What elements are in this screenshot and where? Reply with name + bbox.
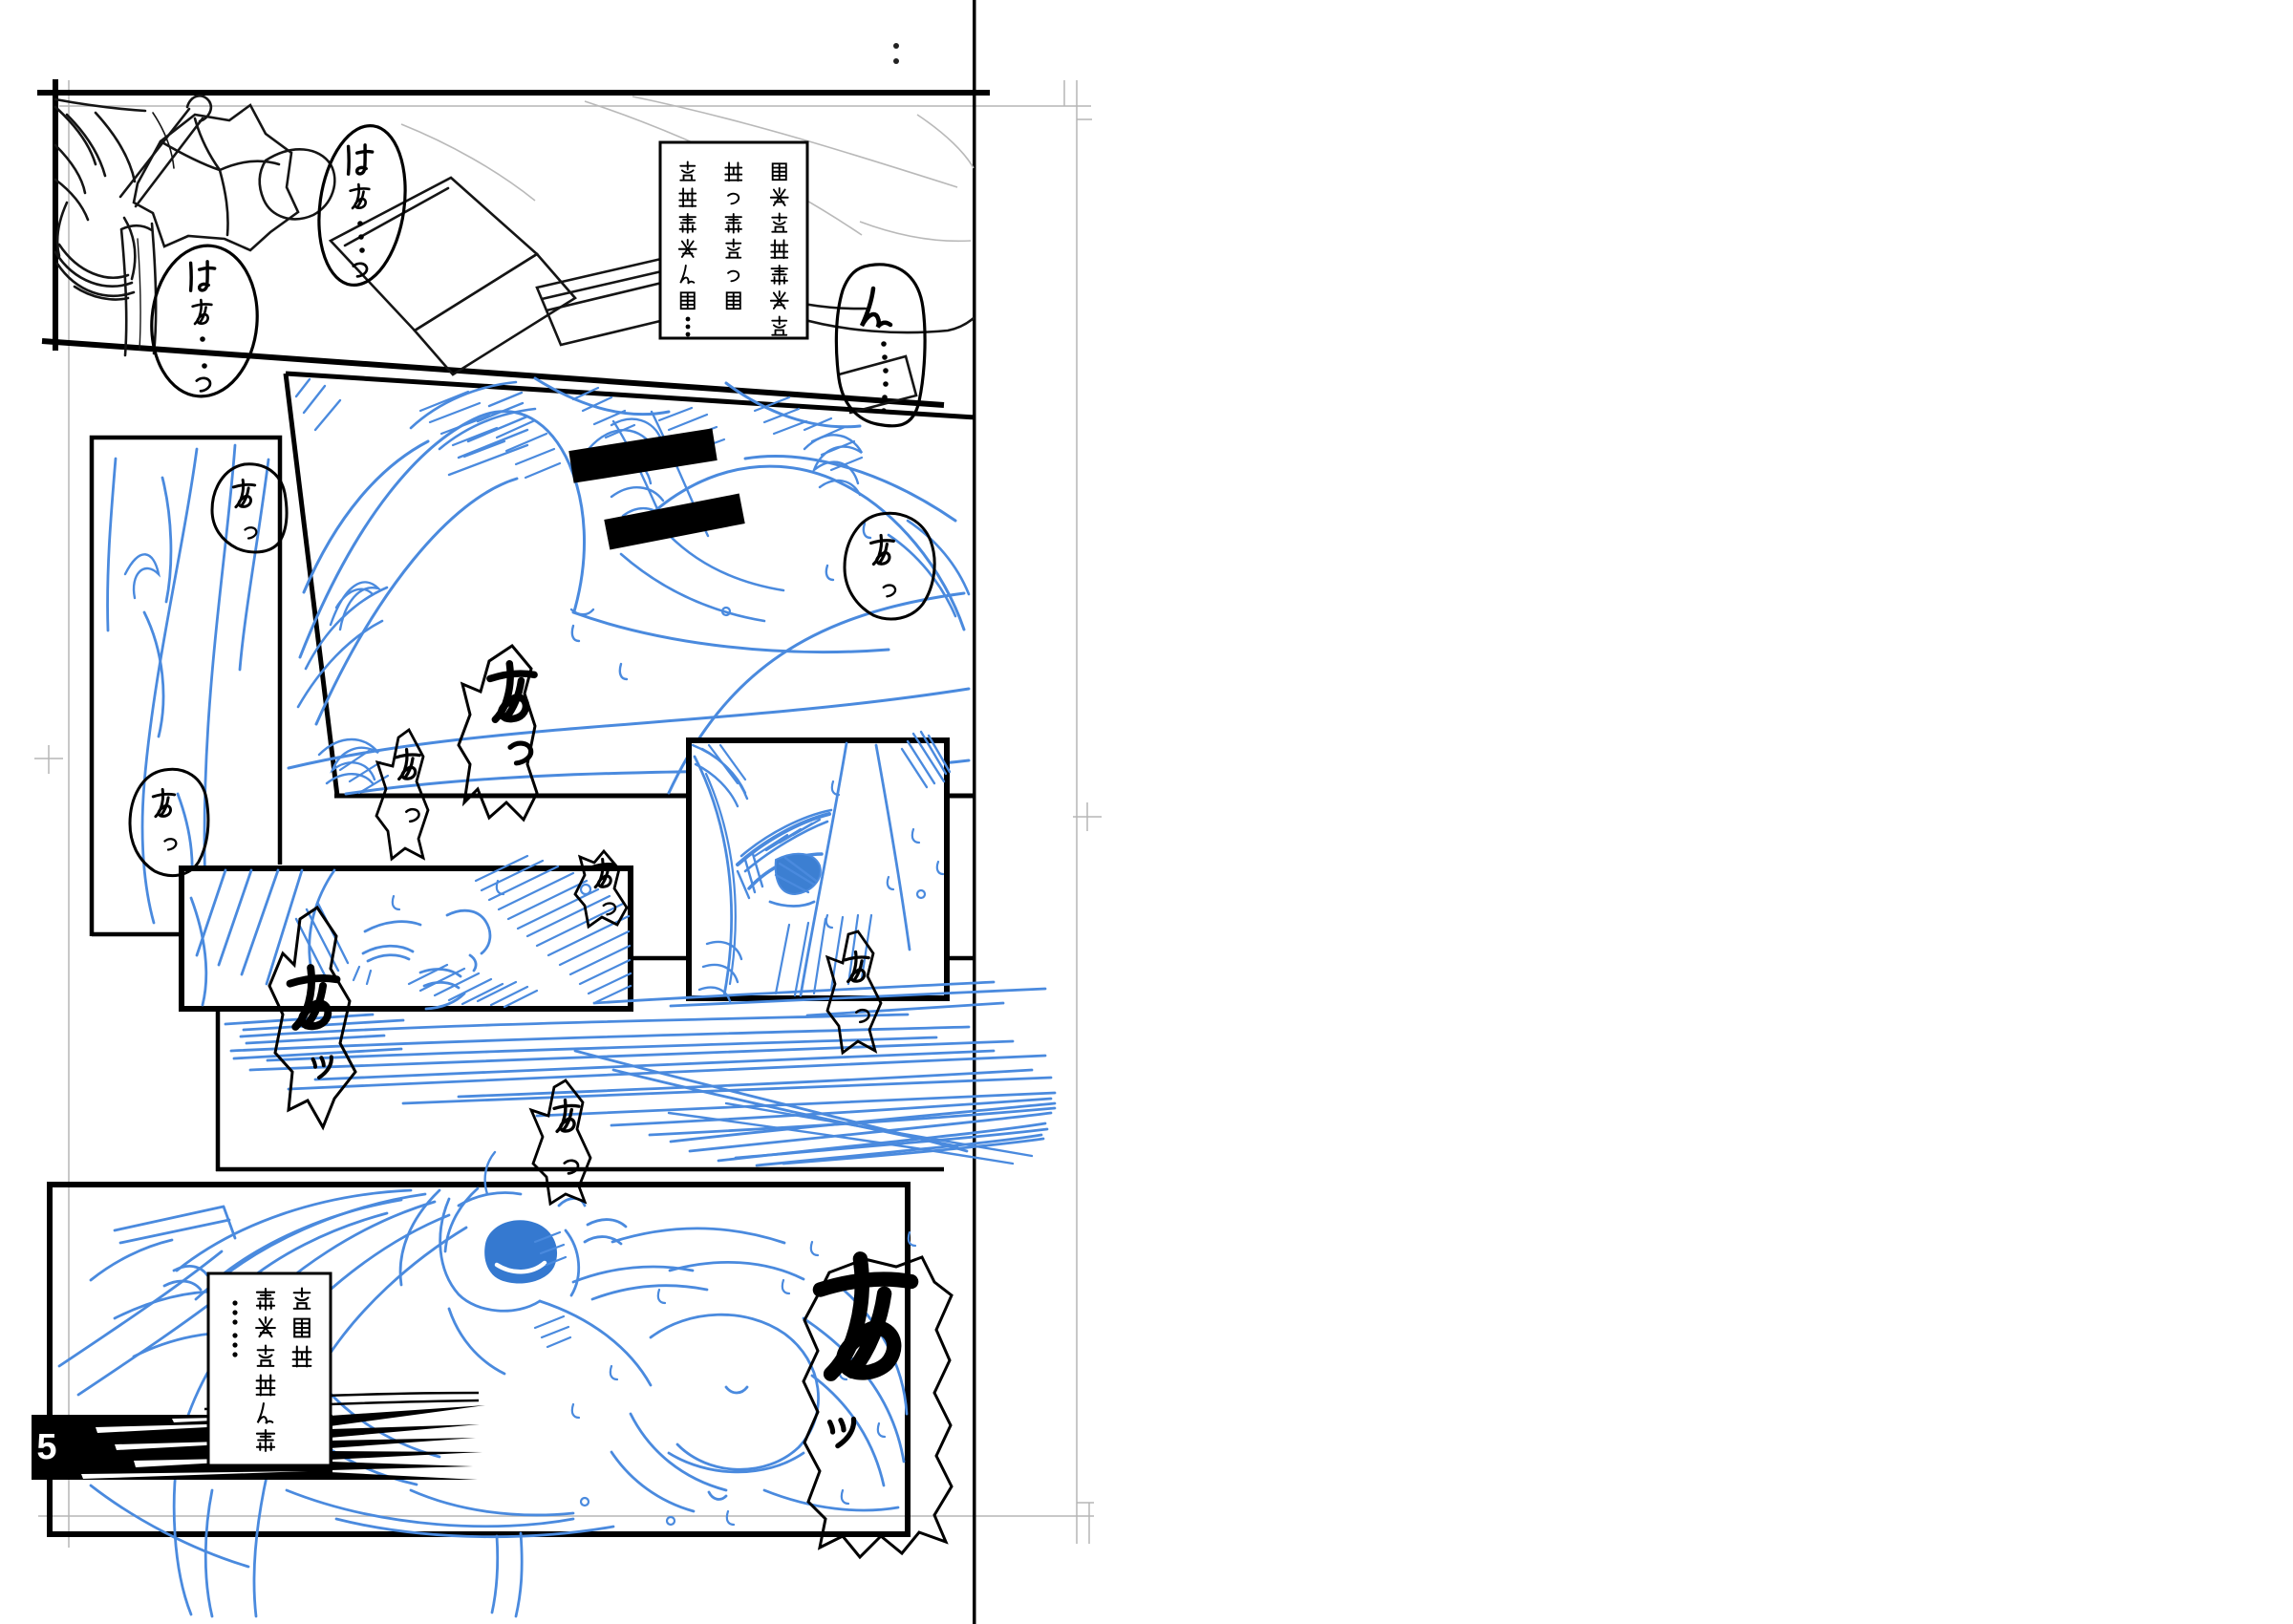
svg-text:5: 5 (36, 1427, 56, 1467)
